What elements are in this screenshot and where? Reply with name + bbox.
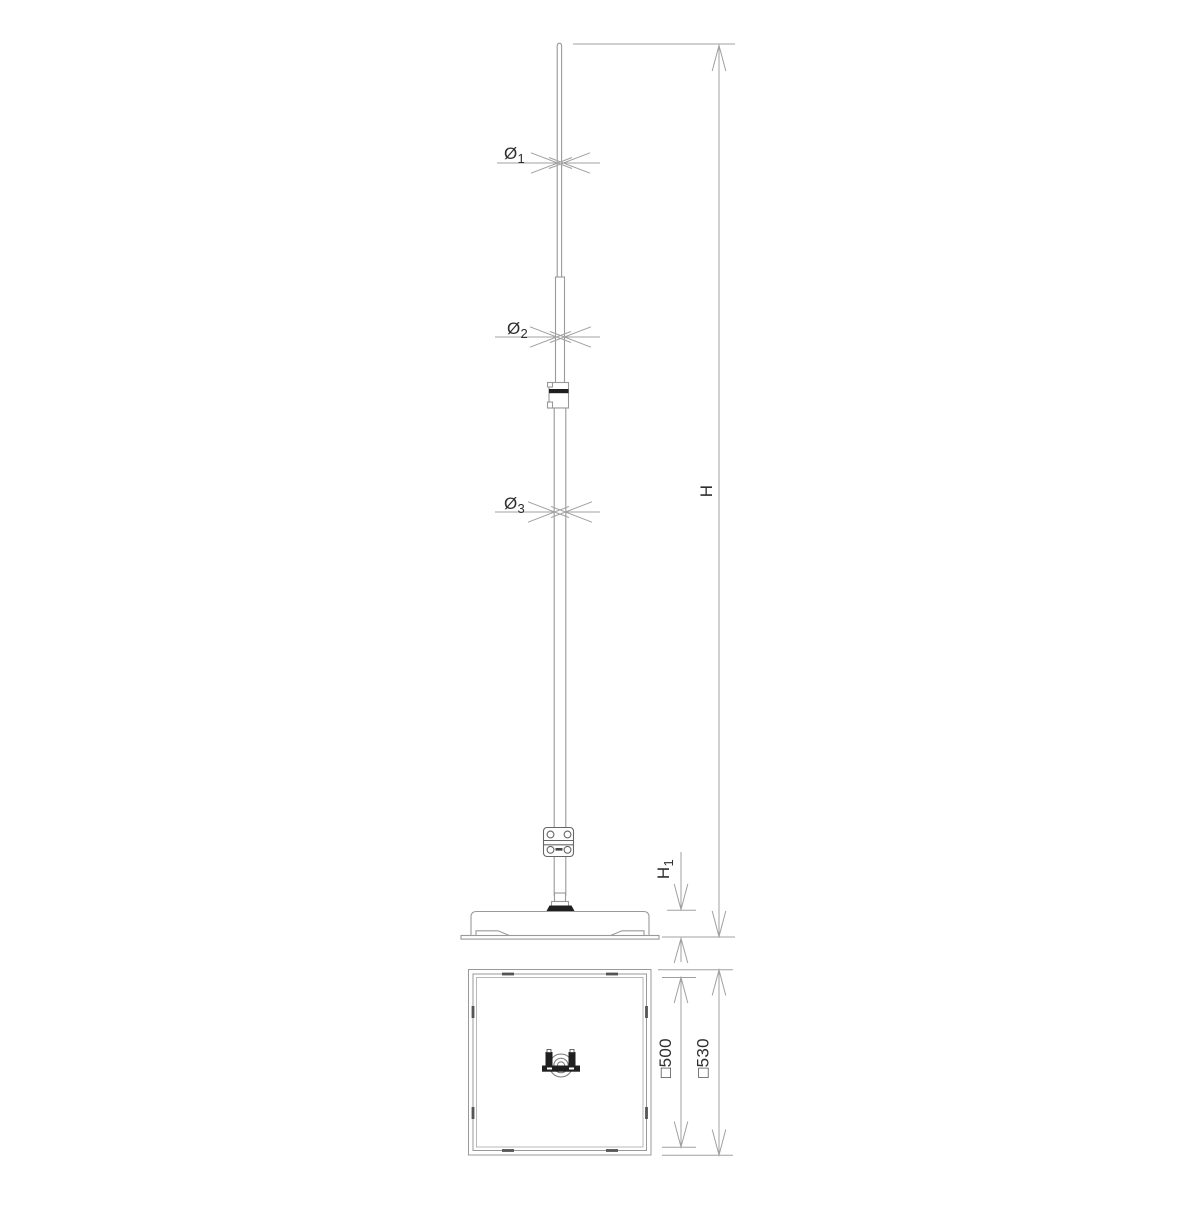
label-dia2: Ø2 <box>507 319 528 341</box>
rod-segment-2 <box>556 277 565 383</box>
rod-coupling <box>548 383 569 409</box>
base-flange <box>461 936 659 940</box>
rod-clamp-bracket <box>544 828 574 857</box>
label-dia3: Ø3 <box>504 494 525 516</box>
label-base-inner: □500 <box>656 1038 675 1078</box>
label-height: H <box>697 485 716 498</box>
technical-drawing: Ø1 Ø2 Ø3 H H1 □500 □530 <box>0 0 1200 1200</box>
rod-base-fitting <box>547 893 575 911</box>
mast-rod <box>544 43 575 911</box>
base-top-view <box>469 970 652 1156</box>
label-dia1: Ø1 <box>504 144 525 166</box>
label-base-outer: □530 <box>694 1038 713 1078</box>
base-body <box>471 912 649 936</box>
drawing-canvas: Ø1 Ø2 Ø3 H H1 □500 □530 <box>0 0 1200 1200</box>
label-height1: H1 <box>654 859 676 879</box>
base-side-view <box>461 912 659 940</box>
rod-segment-3 <box>554 408 566 895</box>
rod-segment-1 <box>557 43 561 277</box>
